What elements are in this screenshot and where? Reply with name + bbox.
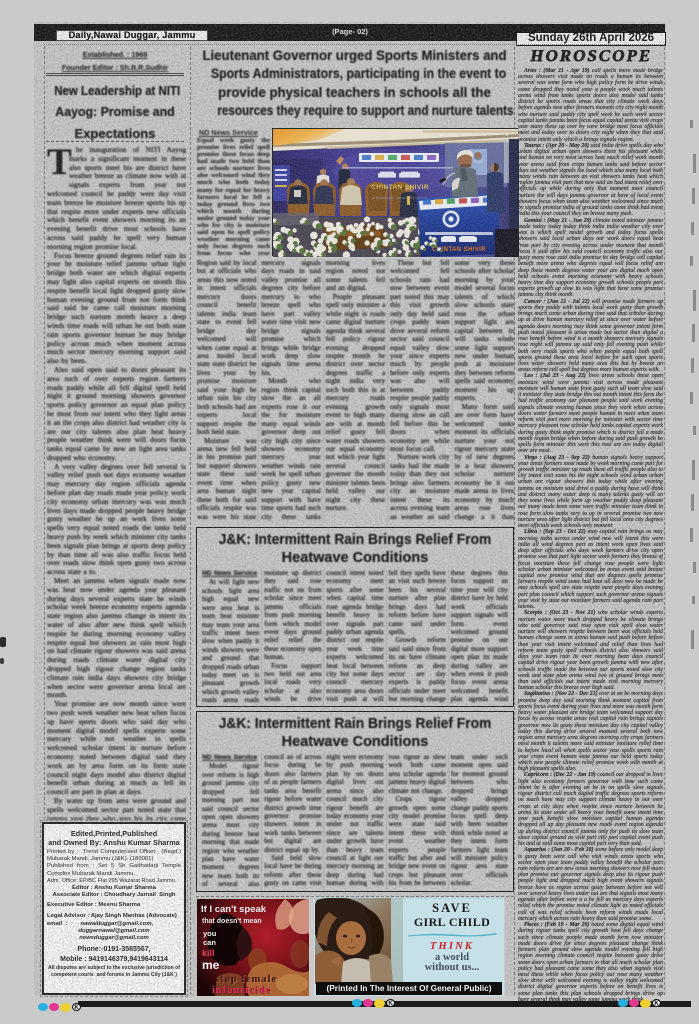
svg-text:can: can xyxy=(203,938,216,947)
svg-text:If I can't speak: If I can't speak xyxy=(201,904,267,915)
svg-text:you: you xyxy=(203,929,217,938)
svg-text:stop female: stop female xyxy=(215,974,277,985)
svg-text:kill: kill xyxy=(202,948,215,958)
svg-text:that doesn't mean: that doesn't mean xyxy=(202,918,262,925)
svg-text:me: me xyxy=(202,958,220,972)
svg-text:infanticide: infanticide xyxy=(212,985,271,996)
